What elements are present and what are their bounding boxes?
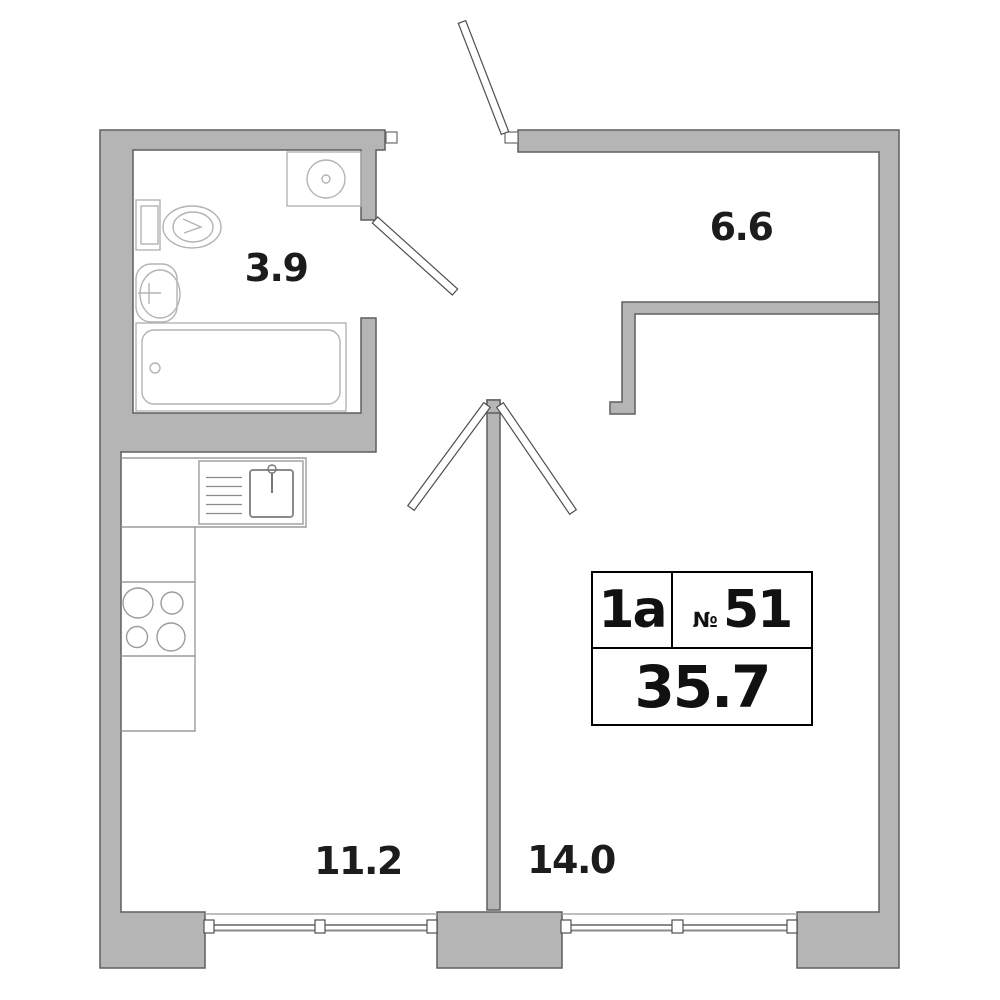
- apartment-layout-type: 1a: [593, 573, 673, 647]
- kitchen-door-leaf: [408, 403, 490, 511]
- apartment-number: 51: [723, 580, 791, 640]
- room-area-label-living-room: 14.0: [527, 838, 615, 882]
- room-area-label-hallway: 6.6: [710, 205, 773, 249]
- wall-hallway-south: [610, 302, 879, 414]
- kitchen-counter: [121, 458, 306, 731]
- wash-basin-icon: [136, 264, 180, 322]
- wall-bottom-middle-pier: [437, 912, 562, 968]
- apartment-number-cell: № 51: [673, 573, 811, 647]
- apartment-total-area: 35.7: [593, 649, 811, 724]
- room-area-label-bathroom: 3.9: [245, 246, 308, 290]
- apartment-card[interactable]: 1a № 51 35.7: [591, 571, 813, 726]
- bathroom-door-leaf: [372, 217, 457, 295]
- entrance-jambs: [386, 132, 518, 143]
- washing-machine-icon: [287, 152, 361, 206]
- stove-icon: [123, 588, 185, 651]
- window-kitchen: [204, 914, 437, 933]
- window-living-room: [561, 914, 797, 933]
- floor-plan[interactable]: 3.9 6.6 11.2 14.0 1a № 51 35.7: [0, 0, 1000, 1000]
- doors: [372, 21, 576, 515]
- bathtub-icon: [136, 323, 346, 411]
- number-sign: №: [693, 608, 718, 632]
- entrance-jamb-right: [505, 132, 518, 143]
- wall-middle-partition: [487, 400, 500, 910]
- kitchen-sink-icon: [199, 461, 303, 524]
- toilet-icon: [136, 200, 221, 250]
- apartment-card-top-row: 1a № 51: [593, 573, 811, 649]
- room-area-label-kitchen: 11.2: [314, 839, 402, 883]
- walls: [100, 130, 899, 968]
- entrance-door-leaf: [458, 21, 508, 135]
- entrance-jamb-left: [386, 132, 397, 143]
- floor-plan-drawing: [0, 0, 1000, 1000]
- living-room-door-leaf: [497, 403, 577, 515]
